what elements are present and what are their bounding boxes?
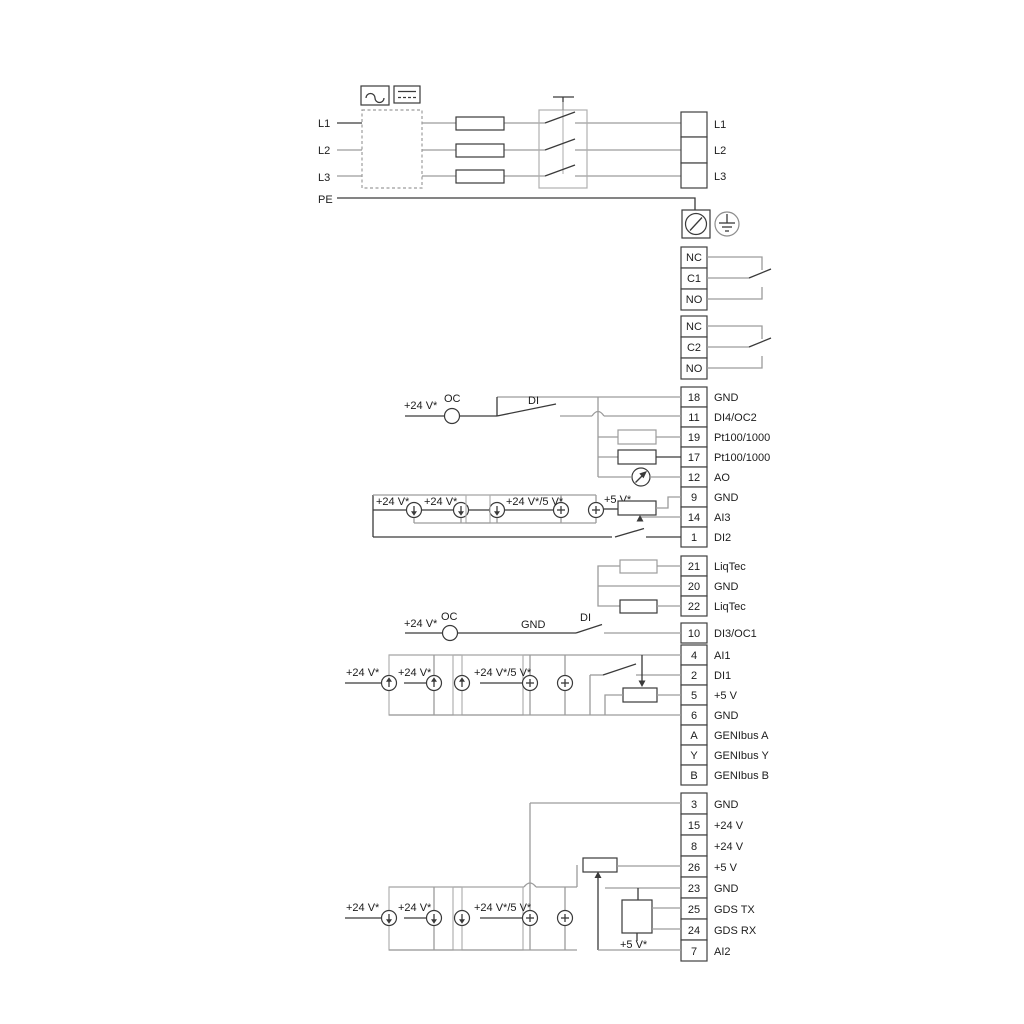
ai2-source-group: +5 V* +24 V* +24 V* +24 V*/5 V*: [345, 803, 681, 951]
mains-input-section: L1 L2 L3 PE: [318, 86, 739, 238]
terminal-number: 9: [691, 492, 697, 504]
terminal-label: LiqTec: [714, 561, 746, 573]
supply-annotation: +24 V*/5 V*: [474, 902, 532, 914]
liqtec-sensor-icon: [620, 560, 657, 573]
open-collector-icon: [445, 409, 460, 424]
supply-annotation: +5 V*: [620, 939, 648, 951]
liqtec-strip: 21 20 22 LiqTec GND LiqTec: [598, 556, 746, 616]
current-source-icon: [382, 676, 397, 691]
di-annotation: DI: [580, 612, 591, 624]
terminal-number: 5: [691, 690, 697, 702]
current-source-icon: [455, 911, 470, 926]
pe-terminal: [682, 210, 710, 238]
terminal-number: 24: [688, 925, 700, 937]
terminal-label: GENIbus B: [714, 770, 769, 782]
terminal-label: GND: [714, 392, 739, 404]
terminal-label: GND: [714, 799, 739, 811]
terminal-label: AO: [714, 472, 730, 484]
supply-annotation: +24 V*/5 V*: [474, 667, 532, 679]
supply-annotation: +24 V*: [376, 496, 410, 508]
ai1-source-group: +24 V* +24 V* +24 V*/5 V*: [345, 655, 681, 715]
terminal-number: B: [690, 770, 697, 782]
pt100-sensor-icon: [618, 450, 656, 464]
dc-symbol-icon: [394, 86, 420, 103]
gnd-annotation: GND: [521, 619, 546, 631]
analog-meter-icon: [632, 468, 650, 486]
potentiometer-icon: [583, 858, 617, 872]
terminal-number: 12: [688, 472, 700, 484]
di3-switch-icon: [576, 625, 602, 634]
di-annotation: DI: [528, 395, 539, 407]
relay-1-block: NC C1 NO: [681, 247, 771, 310]
terminal-number: 15: [688, 820, 700, 832]
terminal-label: GENIbus Y: [714, 750, 769, 762]
terminal-number: 3: [691, 799, 697, 811]
current-source-icon: [455, 676, 470, 691]
terminal-label: +5 V: [714, 690, 738, 702]
terminal-label: GENIbus A: [714, 730, 769, 742]
terminal-number: 26: [688, 862, 700, 874]
fuse-l2: [456, 144, 504, 157]
terminal-label: GND: [714, 581, 739, 593]
oc-annotation: OC: [444, 393, 461, 405]
output-terminal-block: L1 L2 L3: [681, 112, 726, 188]
terminal-number: 19: [688, 432, 700, 444]
terminal-strip-top: 18 11 19 17 12 9 14 1 GND DI4/OC2 Pt100/…: [681, 387, 770, 547]
earth-ground-icon: [715, 212, 739, 236]
supply-annotation: +24 V*: [346, 902, 380, 914]
terminal-label: AI3: [714, 512, 731, 524]
terminal-number: A: [690, 730, 698, 742]
di1-switch-icon: [603, 664, 636, 675]
relay2-nc: NC: [686, 321, 702, 333]
voltage-source-icon: [589, 503, 604, 518]
fuse-l3: [456, 170, 504, 183]
ai3-source-group: +24 V* +24 V* +24 V*/5 V* +5 V*: [373, 494, 681, 537]
relay1-contact: [707, 257, 771, 299]
output-label-l1: L1: [714, 119, 726, 131]
fuse-l1: [456, 117, 504, 130]
terminal-label: AI1: [714, 650, 731, 662]
oc-annotation: OC: [441, 611, 458, 623]
liqtec-wiring: [598, 560, 681, 613]
terminal-strip-mid: 4 2 5 6 A Y B AI1 DI1 +5 V GND GENIbus A…: [681, 645, 769, 785]
gds-sensor-box: [622, 900, 652, 933]
terminal-number: 10: [688, 628, 700, 640]
relay2-contact: [707, 326, 771, 368]
terminal-number: 1: [691, 532, 697, 544]
terminal-number: 6: [691, 710, 697, 722]
terminal-number: 20: [688, 581, 700, 593]
terminal-number: 18: [688, 392, 700, 404]
open-collector-icon: [443, 626, 458, 641]
main-switch: [539, 97, 587, 188]
terminal-number: 2: [691, 670, 697, 682]
supply-annotation: +24 V*/5 V*: [506, 496, 564, 508]
supply-annotation: +24 V*: [404, 400, 438, 412]
di2-switch-icon: [615, 529, 644, 538]
relay2-c2: C2: [687, 342, 701, 354]
terminal-number: 8: [691, 841, 697, 853]
terminal-label: Pt100/1000: [714, 432, 770, 444]
terminal-label: GND: [714, 883, 739, 895]
mains-label-pe: PE: [318, 194, 333, 206]
terminal-number: 25: [688, 904, 700, 916]
terminal-label: +24 V: [714, 841, 744, 853]
terminal-label: LiqTec: [714, 601, 746, 613]
terminal-label: DI2: [714, 532, 731, 544]
terminal-label: GDS TX: [714, 904, 755, 916]
terminal-number: 23: [688, 883, 700, 895]
wiring-diagram: L1 L2 L3 PE: [0, 0, 1024, 1024]
supply-annotation: +24 V*: [404, 618, 438, 630]
mains-label-l3: L3: [318, 172, 330, 184]
output-label-l2: L2: [714, 145, 726, 157]
potentiometer-icon: [618, 501, 656, 515]
terminal-number: 14: [688, 512, 700, 524]
terminal-label: +24 V: [714, 820, 744, 832]
di4-switch-icon: [497, 404, 556, 416]
terminal-number: 21: [688, 561, 700, 573]
terminal-number: 11: [688, 412, 699, 424]
supply-annotation: +24 V*: [346, 667, 380, 679]
relay1-nc: NC: [686, 252, 702, 264]
supply-annotation: +24 V*: [398, 667, 432, 679]
terminal-label: Pt100/1000: [714, 452, 770, 464]
liqtec-sensor-icon: [620, 600, 657, 613]
wiper-arrow-icon: [637, 515, 644, 522]
mains-label-l1: L1: [318, 118, 330, 130]
mains-label-l2: L2: [318, 145, 330, 157]
terminal-label: GND: [714, 710, 739, 722]
voltage-source-icon: [558, 911, 573, 926]
current-source-icon: [382, 911, 397, 926]
terminal-number: 4: [691, 650, 697, 662]
output-label-l3: L3: [714, 171, 726, 183]
pt100-sensor-icon: [618, 430, 656, 444]
terminal-label: DI1: [714, 670, 731, 682]
terminal-number: 22: [688, 601, 700, 613]
terminal-number: 7: [691, 946, 697, 958]
supply-annotation: +24 V*: [398, 902, 432, 914]
strip-top-wiring: +24 V* OC DI: [404, 393, 681, 486]
relay2-no: NO: [686, 363, 703, 375]
mains-wires: [337, 123, 695, 211]
voltage-source-icon: [558, 676, 573, 691]
terminal-label: DI4/OC2: [714, 412, 757, 424]
terminal-label: DI3/OC1: [714, 628, 757, 640]
potentiometer-icon: [623, 688, 657, 702]
relay1-c1: C1: [687, 273, 701, 285]
terminal-label: +5 V: [714, 862, 738, 874]
terminal-strip-bottom: 3 15 8 26 23 25 24 7 GND +24 V +24 V +5 …: [681, 793, 757, 961]
supply-annotation: +24 V*: [424, 496, 458, 508]
wiper-arrow-icon: [639, 681, 646, 688]
terminal-label: GDS RX: [714, 925, 757, 937]
filter-box: [362, 110, 422, 188]
current-source-icon: [490, 503, 505, 518]
terminal-number: Y: [690, 750, 698, 762]
terminal-number: 17: [688, 452, 700, 464]
terminal-label: AI2: [714, 946, 731, 958]
ac-symbol-icon: [361, 86, 389, 105]
relay-2-block: NC C2 NO: [681, 316, 771, 379]
terminal-label: GND: [714, 492, 739, 504]
relay1-no: NO: [686, 294, 703, 306]
diagram-canvas: L1 L2 L3 PE: [0, 0, 1024, 1024]
